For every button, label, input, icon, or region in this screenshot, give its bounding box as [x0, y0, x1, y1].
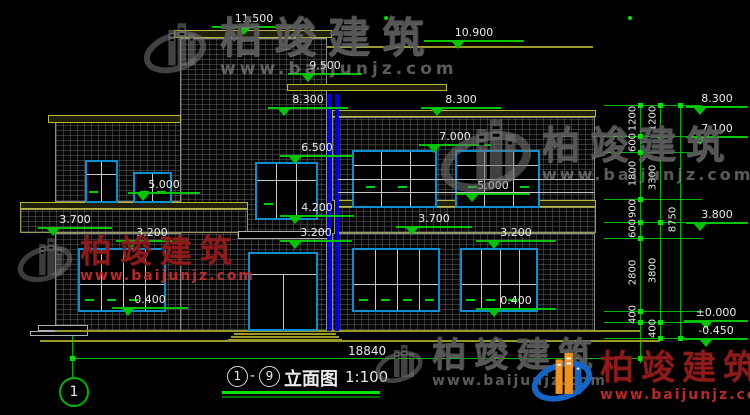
elevation-drawing-canvas: 11.500 10.900 9.500 8.300 8.300 8.300 7.… [0, 0, 750, 415]
dim-grip [658, 320, 663, 325]
brand-logo-icon [530, 344, 594, 408]
window-mullion [397, 250, 398, 310]
dim-grip [638, 236, 643, 241]
door-mullion [283, 274, 284, 329]
watermark-url: www.baijunjz.com [80, 269, 255, 283]
elevation-label: 0.400 [112, 293, 188, 306]
elevation-label: 3.800 [686, 208, 748, 221]
brand-logo-icon [138, 14, 212, 80]
brand-logo-icon [438, 100, 534, 208]
opening-direction-tick [366, 186, 375, 188]
dim-grip [638, 220, 643, 225]
opening-direction-tick [425, 299, 434, 301]
window-mullion [354, 284, 438, 285]
dim-boundary-line [604, 238, 702, 239]
dim-value: 2800 [628, 250, 639, 296]
watermark-brand: 柏竣建筑 [220, 17, 458, 59]
brand-logo-icon [16, 230, 74, 288]
elevation-marker-3800: 3.800 [686, 208, 748, 224]
elevation-label: -0.450 [684, 324, 748, 337]
watermark-stamp-color: 柏竣建筑 www.baijunjz.com [530, 344, 750, 408]
axis-line [72, 359, 73, 377]
dim-value: 400 [628, 292, 639, 338]
dim-grip [638, 320, 643, 325]
elevation-marker-5000-left: 5.000 [128, 178, 200, 194]
drawing-title: 立面图 [284, 365, 338, 391]
opening-direction-tick [264, 203, 273, 205]
brand-logo-icon [372, 338, 426, 388]
left-roof-cap-8300 [48, 115, 181, 123]
elevation-label: ±0.000 [684, 306, 748, 319]
elevation-label: 6.500 [280, 141, 354, 154]
watermark-stamp: 柏竣建筑 www.baijunjz.com [16, 230, 255, 288]
ground-line-upper [55, 330, 640, 332]
opening-direction-tick [466, 299, 475, 301]
door-step-line [234, 333, 336, 335]
opening-direction-tick [381, 299, 390, 301]
window-mullion [257, 180, 316, 181]
watermark-url: www.baijunjz.com [542, 167, 750, 183]
window-mullion [101, 162, 102, 201]
title-axis-to-bubble: 9 [259, 366, 280, 387]
elevation-marker-minus0450: -0.450 [684, 324, 748, 340]
watermark-url: www.baijunjz.com [220, 61, 458, 78]
elevation-marker-3200-center: 3.200 [280, 226, 352, 242]
title-axis-from-bubble: 1 [227, 366, 248, 387]
elevation-marker-3200-right: 3.200 [476, 226, 556, 242]
elevation-marker-4200: 4.200 [280, 201, 354, 217]
opening-direction-tick [403, 299, 412, 301]
dim-grip [638, 309, 643, 314]
watermark-stamp: 柏竣建筑 www.baijunjz.com [438, 100, 750, 208]
title-separator: - [250, 368, 255, 384]
window-mullion [375, 250, 376, 310]
parapet-cap-9500 [287, 84, 447, 91]
opening-direction-tick [85, 299, 94, 301]
opening-direction-tick [359, 299, 368, 301]
axis-bubble-1: 1 [59, 377, 89, 407]
dim-grip [658, 220, 663, 225]
opening-direction-tick [398, 186, 407, 188]
snap-dot [628, 16, 632, 20]
elevation-marker-8300-left: 8.300 [268, 93, 348, 109]
door-step-line [228, 339, 342, 341]
elevation-marker-0400-left: 0.400 [112, 293, 188, 309]
title-underline [222, 391, 380, 394]
window-mullion [354, 165, 435, 166]
watermark-brand: 柏竣建筑 [80, 235, 255, 267]
door-step-line [231, 336, 339, 338]
watermark-brand: 柏竣建筑 [600, 351, 750, 385]
elevation-marker-0400-right: 0.400 [476, 294, 556, 310]
window-mullion [462, 284, 536, 285]
watermark-brand: 柏竣建筑 [542, 126, 750, 164]
dim-grip [678, 336, 683, 341]
window [85, 160, 118, 203]
entrance-door [248, 252, 318, 331]
elevation-label: 3.700 [38, 213, 112, 226]
elevation-label: 8.300 [268, 93, 348, 106]
window-mullion [276, 164, 277, 218]
elevation-label: 3.200 [476, 226, 556, 239]
watermark-stamp: 柏竣建筑 www.baijunjz.com [138, 14, 458, 80]
dim-value: 600 [628, 206, 639, 252]
elevation-label: 5.000 [128, 178, 200, 191]
elevation-label: 3.700 [396, 212, 472, 225]
watermark-url: www.baijunjz.com [600, 388, 750, 402]
title-underline [222, 396, 380, 398]
elevation-marker-0000: ±0.000 [684, 306, 748, 322]
elevation-label: 0.400 [476, 294, 556, 307]
elevation-marker-3700-left: 3.700 [38, 213, 112, 229]
elevation-marker-6500: 6.500 [280, 141, 354, 157]
elevation-label: 3.200 [280, 226, 352, 239]
elevation-label: 4.200 [280, 201, 354, 214]
elevation-marker-3700-right: 3.700 [396, 212, 472, 228]
opening-direction-tick [89, 191, 98, 193]
dim-value: 3800 [648, 248, 659, 294]
window [352, 248, 440, 312]
window-mullion [419, 250, 420, 310]
left-canopy-cap [20, 202, 248, 209]
